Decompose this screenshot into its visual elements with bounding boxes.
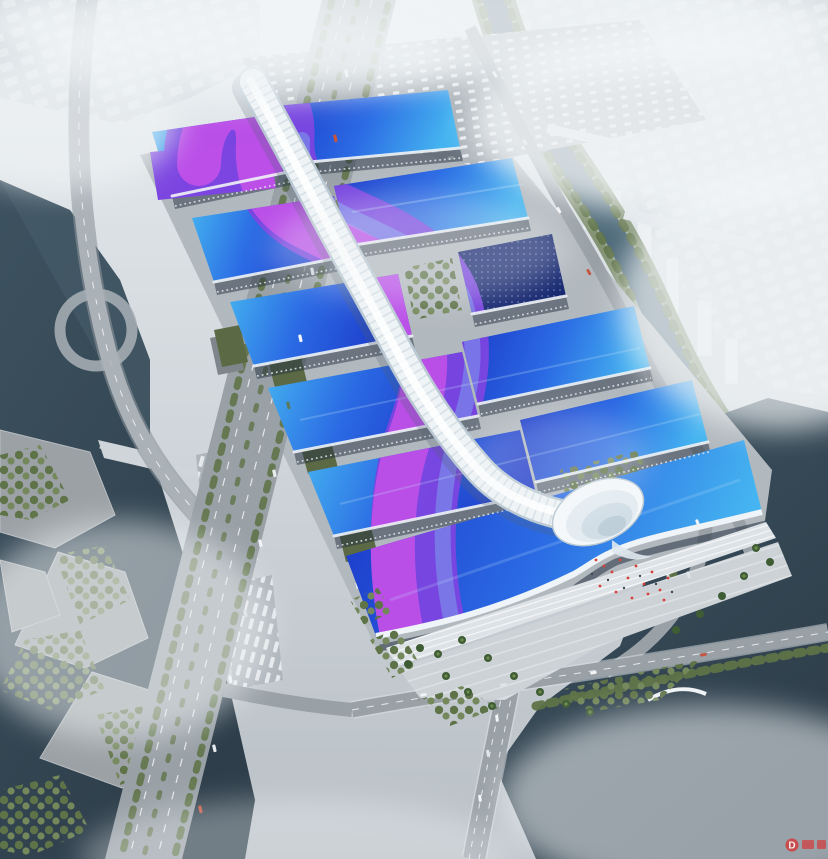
watermark-glyph-block <box>802 840 814 849</box>
watermark-letter: D <box>788 841 795 852</box>
watermark-glyph-block <box>817 840 826 849</box>
aerial-rendering: D <box>0 0 828 859</box>
aerial-rendering-stage: D <box>0 0 828 859</box>
